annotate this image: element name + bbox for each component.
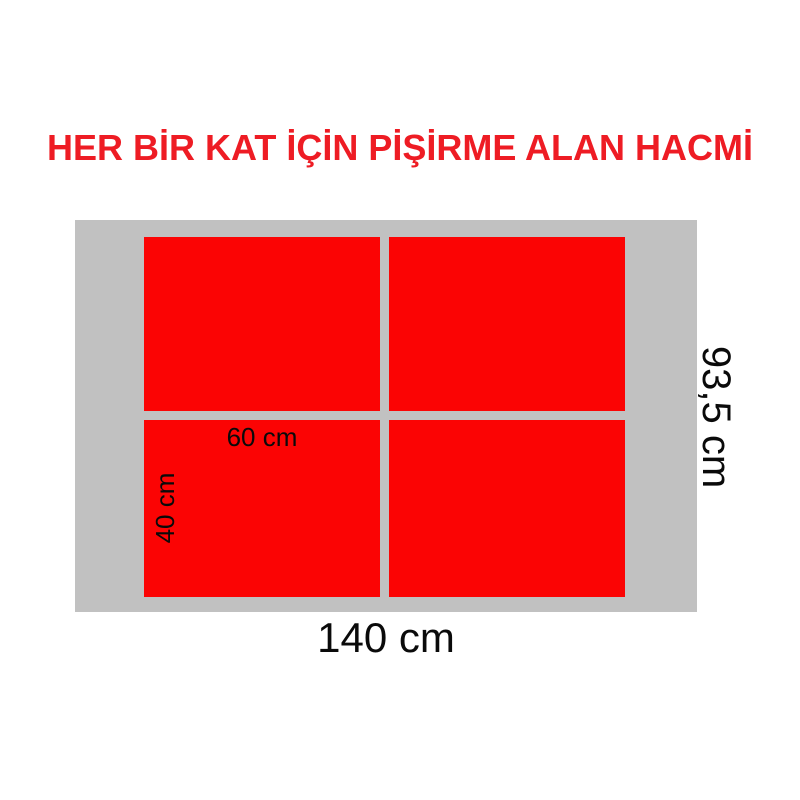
cooking-zone-bottom-right — [389, 420, 625, 597]
tray-width-label: 140 cm — [75, 615, 697, 661]
page-title: HER BİR KAT İÇİN PİŞİRME ALAN HACMİ — [0, 126, 800, 170]
cooking-zone-bottom-left: 60 cm 40 cm — [144, 420, 380, 597]
zone-width-label: 60 cm — [144, 424, 380, 450]
cooking-zone-top-left — [144, 237, 380, 411]
cooking-zone-top-right — [389, 237, 625, 411]
tray-height-label: 93,5 cm — [696, 346, 736, 488]
zone-height-label: 40 cm — [152, 473, 178, 544]
infographic-canvas: HER BİR KAT İÇİN PİŞİRME ALAN HACMİ 60 c… — [0, 0, 800, 800]
oven-tray: 60 cm 40 cm — [75, 220, 697, 612]
